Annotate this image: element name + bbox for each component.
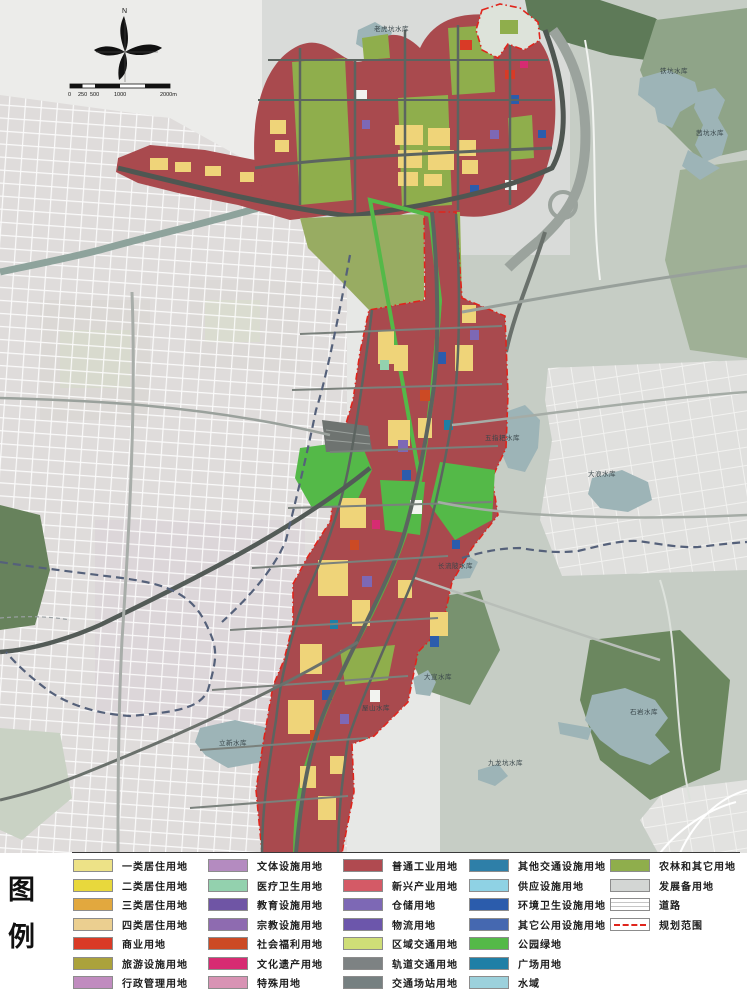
legend-swatch <box>73 859 113 872</box>
legend-item: 一类居住用地 <box>73 859 188 872</box>
scale-tick-label: 1000 <box>114 92 126 98</box>
legend-swatch <box>469 957 509 970</box>
legend-swatch <box>208 898 248 911</box>
legend-item: 文化遗产用地 <box>208 957 323 970</box>
legend-item: 商业用地 <box>73 937 188 950</box>
reservoir-label: 屋山水库 <box>362 703 390 712</box>
legend-item: 行政管理用地 <box>73 976 188 989</box>
legend-item: 供应设施用地 <box>469 879 606 892</box>
legend-swatch <box>343 898 383 911</box>
scale-tick-label: 500 <box>90 92 99 98</box>
legend-item: 教育设施用地 <box>208 898 323 911</box>
reservoir-label: 五指耙水库 <box>485 433 520 442</box>
legend-item: 区域交通用地 <box>343 937 458 950</box>
legend-item: 物流用地 <box>343 918 458 931</box>
legend-swatch <box>343 859 383 872</box>
map-canvas: N 0 250 500 1000 2000m 老虎坑水库 铁坑水库 茜坑水库 五… <box>0 0 747 853</box>
legend-item: 水域 <box>469 976 606 989</box>
legend-item: 文体设施用地 <box>208 859 323 872</box>
legend-swatch <box>73 957 113 970</box>
legend-item: 三类居住用地 <box>73 898 188 911</box>
legend-swatch <box>343 879 383 892</box>
planning-map: N 0 250 500 1000 2000m 老虎坑水库 铁坑水库 茜坑水库 五… <box>0 0 747 853</box>
reservoir-label: 大浪水库 <box>588 469 616 478</box>
legend-column-4: 其他交通设施用地 供应设施用地 环境卫生设施用地 其它公用设施用地 公园绿地 广… <box>469 859 606 989</box>
scale-tick-label: 0 <box>68 92 71 98</box>
legend-swatch <box>73 918 113 931</box>
legend-swatch <box>208 937 248 950</box>
legend-swatch <box>610 859 650 872</box>
scale-tick-label: 2000m <box>160 92 177 98</box>
legend-item: 其他交通设施用地 <box>469 859 606 872</box>
legend-swatch <box>343 957 383 970</box>
legend-swatch-road <box>610 898 650 911</box>
north-label: N <box>122 8 127 15</box>
legend-swatch <box>469 937 509 950</box>
legend-item: 其它公用设施用地 <box>469 918 606 931</box>
reservoir-label: 老虎坑水库 <box>374 24 409 33</box>
legend-item: 社会福利用地 <box>208 937 323 950</box>
reservoir-label: 石岩水库 <box>630 707 658 716</box>
legend-item: 二类居住用地 <box>73 879 188 892</box>
legend-column-1: 一类居住用地 二类居住用地 三类居住用地 四类居住用地 商业用地 旅游设施用地 … <box>73 859 188 989</box>
reservoir-label: 茜坑水库 <box>696 128 724 137</box>
reservoir-label: 铁坑水库 <box>660 66 688 75</box>
legend-swatch <box>208 859 248 872</box>
legend-item: 宗教设施用地 <box>208 918 323 931</box>
legend-swatch <box>469 859 509 872</box>
legend-swatch <box>73 937 113 950</box>
legend-swatch <box>610 879 650 892</box>
legend-swatch <box>73 976 113 989</box>
legend-item: 旅游设施用地 <box>73 957 188 970</box>
legend-item: 特殊用地 <box>208 976 323 989</box>
legend-swatch-plan-boundary <box>610 918 650 931</box>
legend-column-2: 文体设施用地 医疗卫生用地 教育设施用地 宗教设施用地 社会福利用地 文化遗产用… <box>208 859 323 989</box>
legend-item: 医疗卫生用地 <box>208 879 323 892</box>
legend-swatch <box>73 898 113 911</box>
legend-item: 四类居住用地 <box>73 918 188 931</box>
legend-swatch <box>469 898 509 911</box>
legend-swatch <box>343 918 383 931</box>
scale-tick-label: 250 <box>78 92 87 98</box>
reservoir-label: 九龙坑水库 <box>488 758 523 767</box>
legend-swatch <box>208 957 248 970</box>
legend-item: 普通工业用地 <box>343 859 458 872</box>
legend-swatch <box>208 918 248 931</box>
legend-item: 公园绿地 <box>469 937 606 950</box>
reservoir-label: 长流陂水库 <box>438 561 473 570</box>
legend: 图 例 一类居住用地 二类居住用地 三类居住用地 四类居住用地 商业用地 旅游设… <box>0 853 747 993</box>
legend-item: 新兴产业用地 <box>343 879 458 892</box>
legend-item: 仓储用地 <box>343 898 458 911</box>
legend-swatch <box>469 879 509 892</box>
legend-swatch <box>208 879 248 892</box>
legend-item: 环境卫生设施用地 <box>469 898 606 911</box>
legend-item: 发展备用地 <box>610 879 736 892</box>
legend-swatch <box>343 976 383 989</box>
reservoir-label: 立新水库 <box>219 738 247 747</box>
legend-item: 广场用地 <box>469 957 606 970</box>
legend-swatch <box>73 879 113 892</box>
legend-item: 规划范围 <box>610 918 736 931</box>
legend-item: 农林和其它用地 <box>610 859 736 872</box>
legend-column-5: 农林和其它用地 发展备用地 道路 规划范围 <box>610 859 736 931</box>
reservoir-label: 大宣水库 <box>424 672 452 681</box>
legend-swatch <box>343 937 383 950</box>
legend-swatch <box>469 918 509 931</box>
legend-swatch <box>208 976 248 989</box>
legend-item: 轨道交通用地 <box>343 957 458 970</box>
legend-column-3: 普通工业用地 新兴产业用地 仓储用地 物流用地 区域交通用地 轨道交通用地 交通… <box>343 859 458 989</box>
legend-title: 图 例 <box>8 877 42 951</box>
legend-item: 交通场站用地 <box>343 976 458 989</box>
legend-item: 道路 <box>610 898 736 911</box>
legend-swatch <box>469 976 509 989</box>
